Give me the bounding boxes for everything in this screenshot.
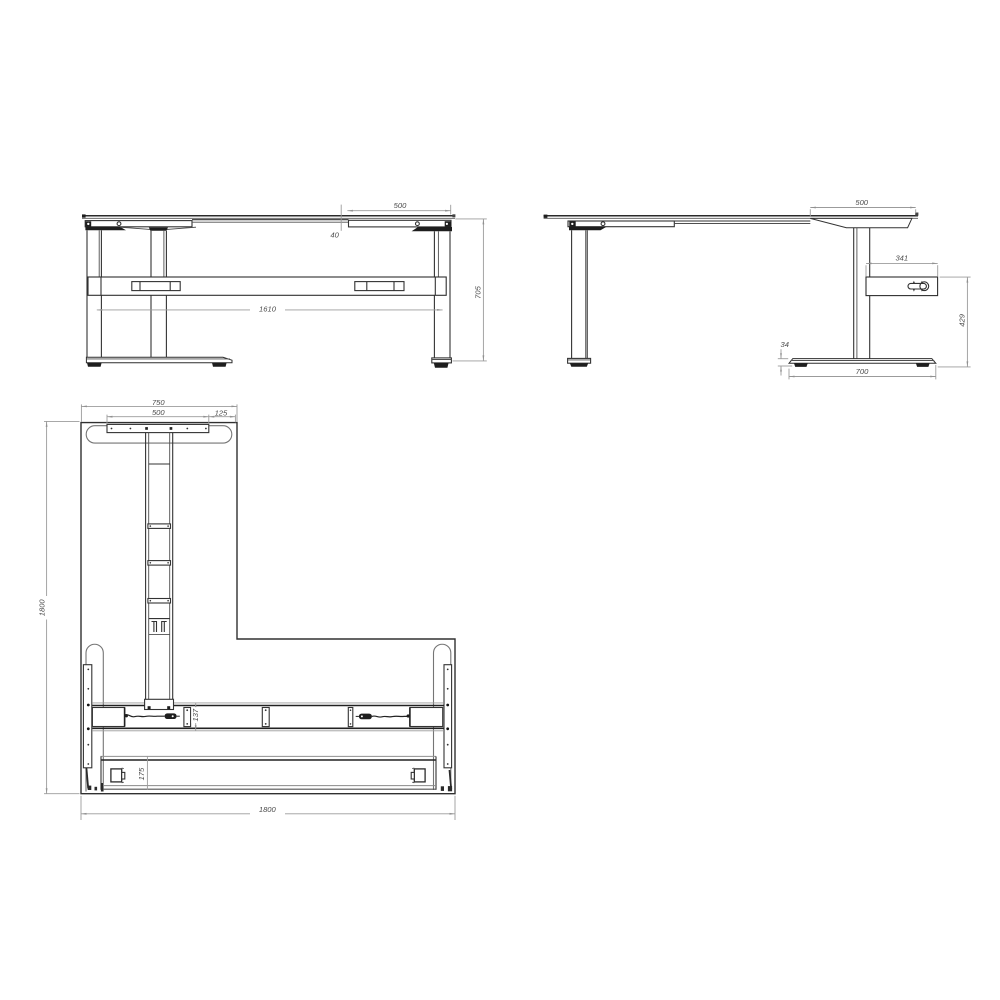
svg-text:175: 175 <box>137 767 146 780</box>
svg-text:750: 750 <box>152 398 165 407</box>
svg-text:34: 34 <box>780 340 788 349</box>
svg-text:429: 429 <box>957 313 966 326</box>
svg-text:1800: 1800 <box>259 805 277 814</box>
svg-text:700: 700 <box>856 367 869 376</box>
svg-text:137: 137 <box>191 708 200 721</box>
svg-text:341: 341 <box>895 254 908 263</box>
svg-text:500: 500 <box>394 201 407 210</box>
svg-text:1800: 1800 <box>37 599 46 617</box>
svg-text:500: 500 <box>152 408 165 417</box>
svg-text:705: 705 <box>474 285 483 298</box>
svg-text:125: 125 <box>215 408 228 417</box>
svg-text:500: 500 <box>855 198 868 207</box>
svg-text:40: 40 <box>330 231 339 240</box>
svg-text:1610: 1610 <box>259 304 277 313</box>
